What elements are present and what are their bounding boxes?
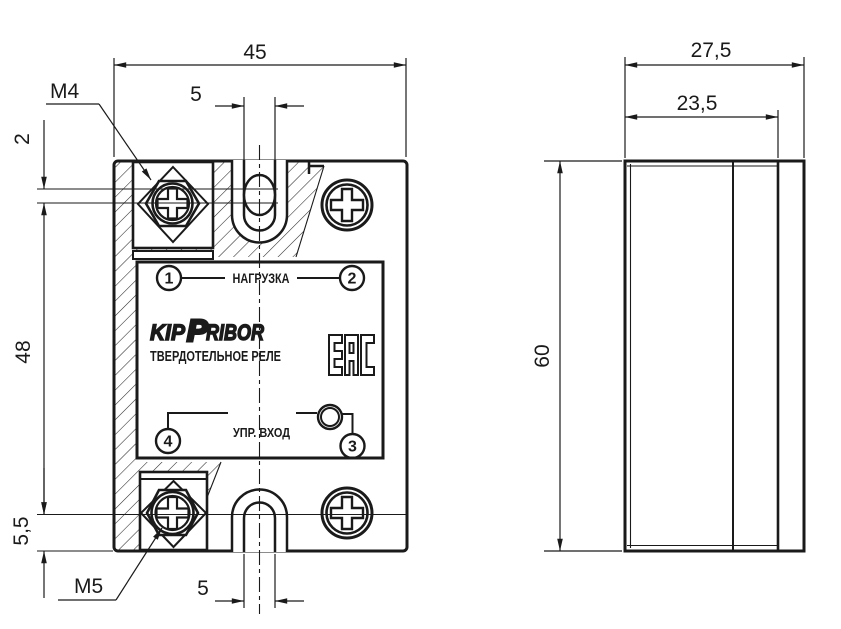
- dim-height: 60: [531, 344, 554, 367]
- top-terminal-block: [133, 162, 213, 259]
- top-right-screw: [322, 180, 372, 230]
- dim-bottom-offset: 5,5: [10, 516, 33, 545]
- relay-dimension-drawing: 1 НАГРУЗКА 2 KIP P RIBOR ТВЕРДОТЕЛЬНОЕ Р…: [0, 0, 841, 629]
- dim-top-offset: 2: [11, 133, 34, 145]
- bottom-terminal-block: [140, 472, 207, 550]
- load-label: НАГРУЗКА: [233, 271, 290, 286]
- product-name: ТВЕРДОТЕЛЬНОЕ РЕЛЕ: [150, 349, 281, 365]
- terminal-3-number: 3: [348, 439, 357, 456]
- dim-top-slot: 5: [190, 83, 202, 106]
- dim-bottom-slot: 5: [197, 577, 209, 600]
- dim-depth: 27,5: [691, 39, 732, 62]
- brand-logo-ribor: RIBOR: [206, 320, 264, 345]
- bottom-right-screw: [322, 488, 372, 538]
- brand-logo-kip: KIP: [150, 320, 185, 345]
- front-view: 1 НАГРУЗКА 2 KIP P RIBOR ТВЕРДОТЕЛЬНОЕ Р…: [37, 145, 407, 614]
- technical-drawing: 1 НАГРУЗКА 2 KIP P RIBOR ТВЕРДОТЕЛЬНОЕ Р…: [0, 0, 841, 629]
- terminal-4-number: 4: [164, 434, 173, 451]
- control-input-label: УПР. ВХОД: [233, 425, 291, 440]
- dim-width: 45: [243, 41, 266, 64]
- thread-callout-m4: M4: [50, 80, 79, 103]
- brand-logo-p: P: [187, 313, 208, 348]
- dim-housing-depth: 23,5: [677, 92, 718, 115]
- terminal-2-number: 2: [348, 271, 357, 288]
- thread-callout-m5: M5: [74, 575, 103, 598]
- dim-hole-spacing: 48: [12, 340, 35, 363]
- side-view: [625, 161, 804, 551]
- terminal-1-number: 1: [165, 271, 174, 288]
